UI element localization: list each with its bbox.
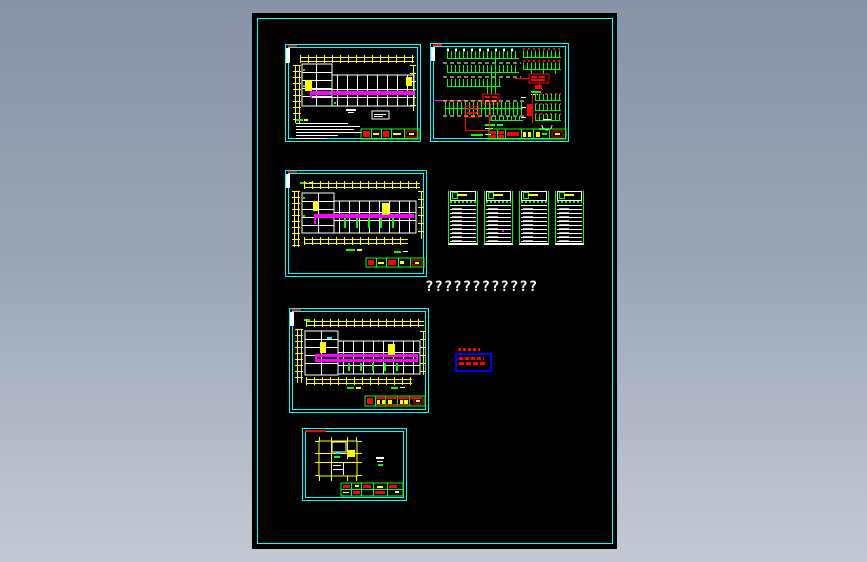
panel-schedule-3: [519, 191, 549, 245]
panel-schedule-1: [448, 191, 478, 245]
table-header-highlight: [457, 194, 467, 196]
floor-plan-top-drawing: [286, 45, 420, 141]
table-rows: [521, 205, 547, 242]
sheet-floor-plan-bottom: [289, 308, 429, 413]
busway-magenta: [314, 214, 414, 218]
sheet-system-diagram: [430, 43, 569, 142]
floor-plan-bottom-drawing: [290, 309, 428, 412]
legend-note-block: [455, 347, 495, 373]
drawing-canvas[interactable]: ????????????: [252, 13, 617, 549]
table-rows: [557, 205, 583, 242]
title-block: [341, 483, 403, 496]
table-rows: [450, 205, 476, 242]
table-rows: [486, 205, 512, 242]
bottom-circuit-cluster: [443, 101, 526, 136]
title-block: [489, 129, 566, 139]
app-screen: ????????????: [0, 0, 867, 562]
table-header-highlight: [528, 194, 538, 196]
sheet-floor-plan-middle: [285, 170, 427, 277]
system-diagram-drawing: [431, 44, 568, 141]
notes-text-lines: [296, 119, 362, 139]
table-subheader-row: [486, 201, 512, 203]
magenta-marker: [502, 230, 504, 232]
stair-highlight: [305, 80, 312, 91]
right-circuit-cluster: [515, 49, 561, 95]
legend-blue-box: [455, 353, 492, 372]
floor-plan-middle-drawing: [286, 171, 426, 276]
busway-magenta: [310, 91, 414, 95]
table-header-highlight: [564, 194, 574, 196]
title-block: [361, 129, 419, 139]
panel-schedule-tables: [448, 191, 584, 243]
sheet-floor-plan-top: [285, 44, 421, 142]
table-subheader-row: [521, 201, 547, 203]
legend-note-line: [459, 362, 486, 365]
title-block: [366, 258, 424, 267]
garbled-title-text: ????????????: [425, 277, 565, 297]
legend-caption-text: [458, 348, 480, 351]
legend-note-line: [459, 357, 484, 360]
panel-schedule-2: [484, 191, 514, 245]
busway-magenta-upper: [315, 354, 418, 357]
riser-cluster: [521, 94, 561, 130]
busway-magenta-lower: [315, 359, 418, 362]
small-plan-drawing: [303, 429, 406, 500]
sheet-small-plan: [302, 428, 407, 501]
table-header-highlight: [493, 194, 503, 196]
circuit-comb-rows: [443, 50, 521, 87]
panel-schedule-4: [555, 191, 585, 245]
table-subheader-row: [450, 201, 476, 203]
table-subheader-row: [557, 201, 583, 203]
title-block: [365, 396, 425, 406]
